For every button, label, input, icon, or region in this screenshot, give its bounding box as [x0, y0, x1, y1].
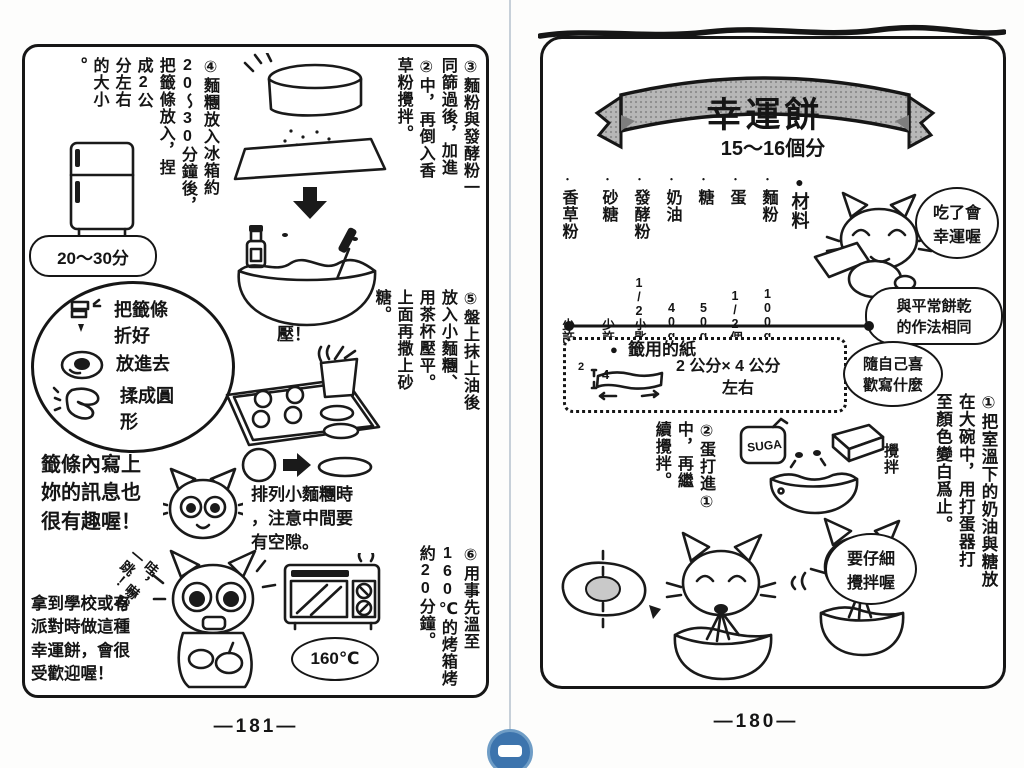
- message-note: 籤條內寫上 妳的訊息也 很有趣喔！: [41, 451, 141, 536]
- ingredient-name: 蛋: [724, 189, 748, 206]
- paper-bullet-icon: ●: [610, 342, 618, 357]
- ingredient-item: ・ 糖 50g: [690, 175, 717, 343]
- comic-page-left: ④麵糰放入冰箱約 20～30分鐘後， 把籤條放入，捏 成2公 分左右 的大小 。…: [22, 44, 489, 698]
- whisking-cat-illustration: [649, 527, 799, 685]
- page-gutter-divider: [509, 0, 511, 768]
- mixing-bowl-illustration: [225, 183, 390, 333]
- yield-text: 15～16個分: [683, 135, 863, 163]
- same-method-bubble: 與平常餅乾 的作法相同: [865, 287, 1003, 345]
- startled-cat-illustration: [145, 547, 285, 695]
- paper-size-text2: 左右: [722, 378, 754, 401]
- ingredient-name: 奶油: [660, 189, 684, 223]
- step6-text: ⑥用事先溫至 160℃的烤箱烤 約20分鐘。: [419, 545, 481, 715]
- page-number-left: —181—: [176, 716, 336, 738]
- cracked-egg-illustration: [553, 545, 663, 635]
- fridge-illustration: [59, 139, 143, 239]
- page-number-right: —180—: [676, 711, 836, 733]
- flour-sifter-illustration: [231, 53, 391, 185]
- paper-width-label: 4: [602, 366, 609, 384]
- ingredient-item: ・ 奶油 40g: [658, 175, 685, 343]
- cat-head-illustration: [163, 465, 243, 541]
- folded-strip-icon: [68, 298, 104, 338]
- paper-height-label: 2: [578, 360, 584, 376]
- flatten-diagram: [239, 445, 373, 485]
- ingredient-name: 香草粉: [556, 189, 580, 240]
- ingredient-dot: ・: [762, 175, 773, 186]
- step6-col: ⑥用事先溫至: [459, 545, 480, 715]
- step5-col: 用茶杯壓平。: [415, 289, 436, 469]
- step3-col: 同篩過後，加進: [437, 57, 458, 267]
- ingredient-item: ・ 香草粉 少許: [554, 175, 581, 343]
- ingredient-dot: ・: [562, 175, 573, 186]
- ingredient-name: 砂糖: [596, 189, 620, 223]
- sugar-butter-bowl-illustration: SUGA: [737, 417, 887, 517]
- step2-text: ②蛋打進① 中，再繼 續攪拌。: [651, 421, 717, 531]
- step6-col: 約20分鐘。: [415, 545, 436, 715]
- materials-bullet-icon: ●: [795, 175, 803, 189]
- step1-col: ①把室溫下的奶油與糖放: [976, 393, 998, 673]
- step2-col: ②蛋打進①: [695, 421, 716, 531]
- step4-col: ④麵糰放入冰箱約: [199, 57, 220, 309]
- recipe-title: 幸運餅: [589, 87, 941, 138]
- ingredient-item: ・ 麵粉 100g: [754, 175, 781, 343]
- stir-label-text: 攪拌: [880, 443, 900, 495]
- stir-label: 攪拌: [879, 443, 901, 495]
- fold-instructions-cloud: 把籤條 折好 放進去 揉成圓 形: [31, 281, 235, 453]
- dough-ball-icon: [60, 350, 104, 380]
- stir-well-bubble: 要仔細 攪拌喔: [825, 533, 917, 605]
- ingredient-dot: ・: [602, 175, 613, 186]
- ingredient-name: 麵粉: [756, 189, 780, 223]
- cloud-fold-text: 把籤條 折好: [114, 298, 168, 349]
- rolling-hand-icon: [52, 384, 104, 424]
- ingredient-item: ・ 蛋 1/2個: [722, 175, 749, 343]
- step3-text: ③麵粉與發酵粉一 同篩過後，加進 ②中，再倒入香 草粉攪拌。: [381, 57, 481, 267]
- ingredient-item: ・ 砂糖 少許: [594, 175, 621, 343]
- ingredient-dot: ・: [634, 175, 645, 186]
- ingredient-amount: 100g: [761, 287, 775, 343]
- oven-temp-bubble: 160℃: [291, 637, 379, 681]
- step3-col: ②中，再倒入香: [415, 57, 436, 267]
- step3-col: 草粉攪拌。: [393, 57, 414, 267]
- oven-illustration: [277, 553, 387, 637]
- ingredient-name: 發酵粉: [628, 189, 652, 240]
- spacing-note: 排列小麵糰時 ，注意中間要 有空隙。: [251, 483, 353, 555]
- cloud-roll-text: 揉成圓 形: [120, 384, 174, 435]
- ingredients-list: ● 材料 ・ 麵粉 100g ・ 蛋 1/2個 ・ 糖 50g ・ 奶油 40g: [553, 175, 813, 343]
- step5-col: 放入小麵糰、: [437, 289, 458, 469]
- paper-size-text: 2 公分× 4 公分: [676, 356, 780, 379]
- cloud-put-text: 放進去: [116, 352, 170, 378]
- party-note: 拿到學校或有 派對時做這種 幸運餅，會很 受歡迎喔！: [31, 593, 130, 687]
- step5-text: ⑤盤上抹上油後 放入小麵糰、 用茶杯壓平。 上面再撒上砂 糖。: [381, 289, 481, 469]
- step1-col: 在大碗中，用打蛋器打: [953, 393, 975, 673]
- ingredient-dot: ・: [730, 175, 741, 186]
- step1-col: 至顏色變白爲止。: [931, 393, 953, 673]
- fortune-paper-box: ● 籤用的紙 4 2 2 公分× 4 公分 左右: [563, 337, 847, 413]
- step6-col: 160℃的烤箱烤: [437, 545, 458, 715]
- ingredient-item: ・ 發酵粉 1/2小匙: [626, 175, 653, 343]
- ingredient-name: 糖: [692, 189, 716, 206]
- viewer-nav-pill-icon: [498, 745, 522, 757]
- step2-col: 續攪拌。: [651, 421, 672, 531]
- step5-col: 上面再撒上砂: [393, 289, 414, 469]
- comic-spread: ④麵糰放入冰箱約 20～30分鐘後， 把籤條放入，捏 成2公 分左右 的大小 。…: [0, 0, 1024, 768]
- ingredient-dot: ・: [698, 175, 709, 186]
- section-divider: [561, 319, 877, 333]
- ingredient-amount: 1/2個: [726, 289, 745, 344]
- baking-tray-illustration: [217, 343, 387, 449]
- step3-col: ③麵粉與發酵粉一: [459, 57, 480, 267]
- step4-col: 把籤條放入，捏: [155, 57, 176, 309]
- viewer-nav-button[interactable]: [487, 729, 533, 768]
- step2-col: 中，再繼: [673, 421, 694, 531]
- step4-col: 20～30分鐘後，: [177, 57, 198, 309]
- comic-page-right: 幸運餅 15～16個分 ● 材料 ・ 麵粉 100g ・ 蛋 1/2個 ・ 糖: [540, 36, 1006, 689]
- lucky-speech-bubble: 吃了會 幸運喔: [915, 187, 999, 259]
- ingredient-dot: ・: [666, 175, 677, 186]
- fridge-time-bubble: 20～30分: [29, 235, 157, 277]
- step5-col: ⑤盤上抹上油後: [459, 289, 480, 469]
